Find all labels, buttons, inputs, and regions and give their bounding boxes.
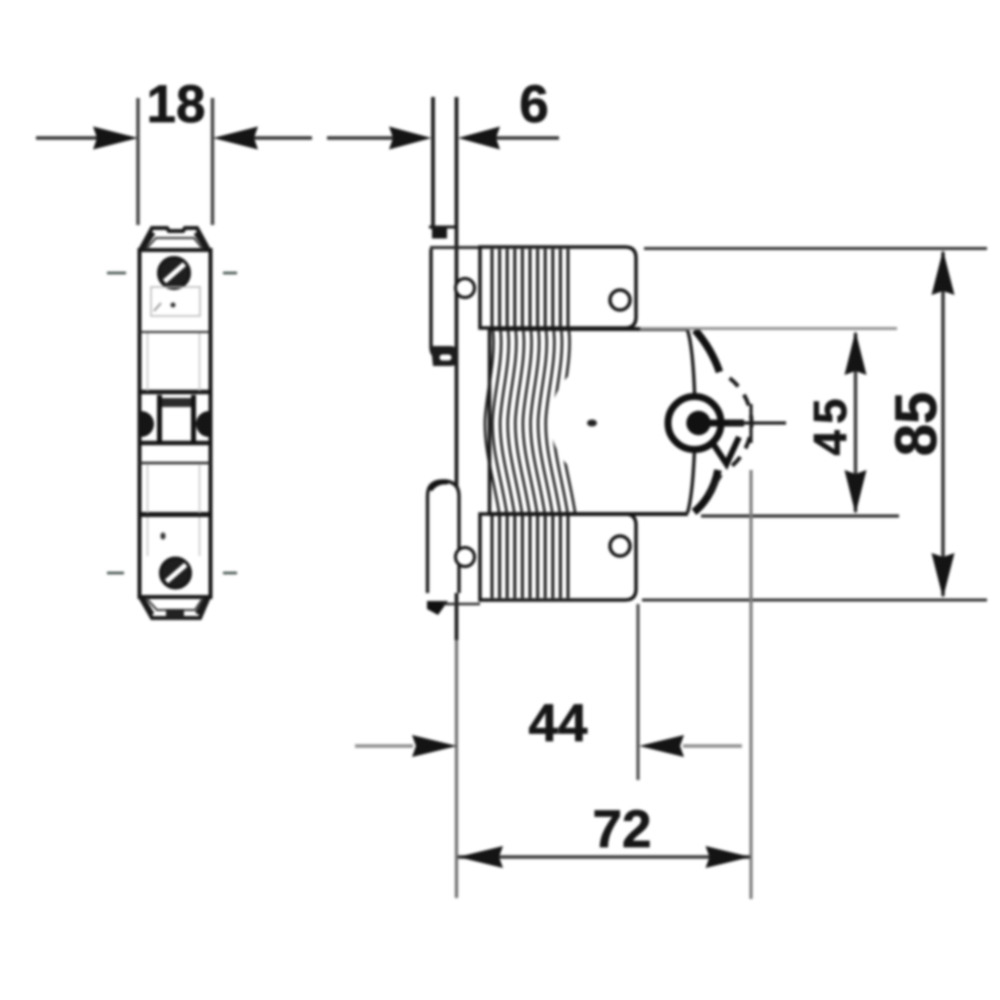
svg-text:72: 72 [593,800,652,859]
svg-text:45: 45 [804,392,856,455]
svg-text:6: 6 [519,75,548,134]
svg-text:44: 44 [529,694,588,753]
svg-text:85: 85 [884,392,949,457]
svg-text:18: 18 [147,75,206,134]
